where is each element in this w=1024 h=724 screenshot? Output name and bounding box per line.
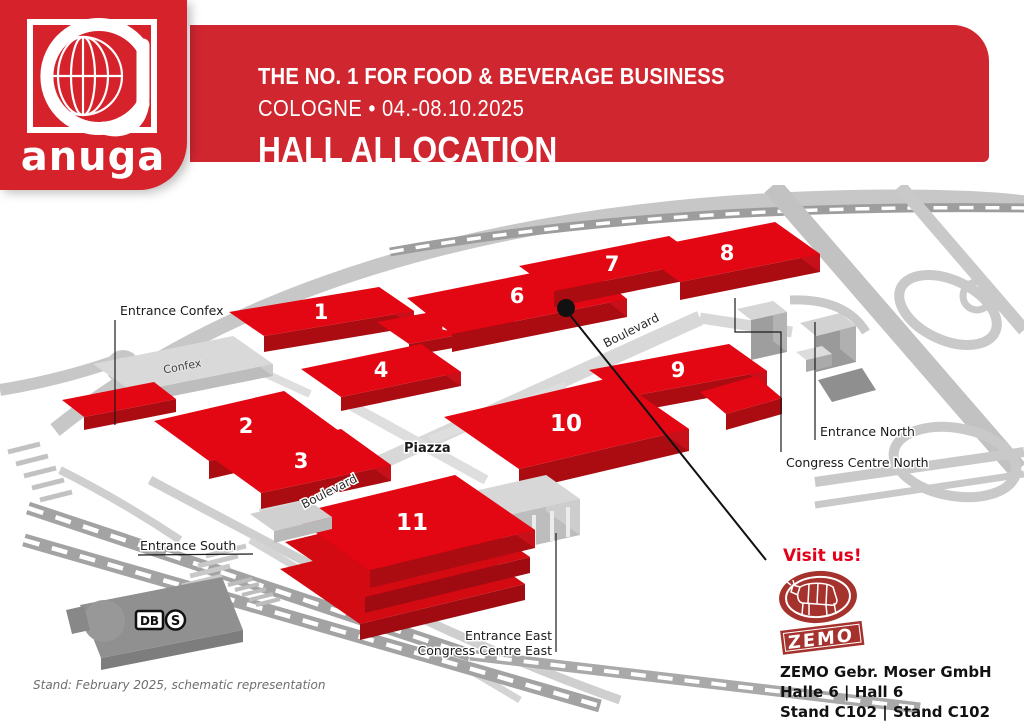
hall-3-number: 3: [294, 449, 309, 473]
sbahn-icon: S: [166, 611, 185, 630]
visit-us-label: Visit us!: [783, 546, 862, 566]
anuga-logo: anuga: [0, 0, 187, 190]
anuga-logo-icon: anuga: [0, 0, 187, 190]
hall-2-number: 2: [239, 414, 254, 438]
hall-10-number: 10: [550, 411, 582, 437]
hall-8: 8: [635, 222, 820, 300]
svg-text:S: S: [171, 614, 180, 629]
anuga-wordmark: anuga: [21, 134, 166, 180]
entrance-north-label: Entrance North: [820, 424, 915, 439]
hall-1-number: 1: [314, 300, 329, 324]
header-date-city: COLOGNE • 04.-08.10.2025: [258, 95, 524, 122]
hall-7-number: 7: [605, 252, 620, 276]
svg-text:DB: DB: [140, 614, 159, 628]
hall-11-number: 11: [396, 510, 428, 536]
exhibitor-company: ZEMO Gebr. Moser GmbH: [780, 662, 992, 682]
db-icon: DB: [136, 611, 163, 629]
entrance-confex-label: Entrance Confex: [120, 303, 224, 318]
hall-allocation-map: Confex 1 5 6 7 8: [0, 185, 1024, 724]
entrance-east-label: Entrance East: [465, 628, 552, 643]
header-banner: THE NO. 1 FOR FOOD & BEVERAGE BUSINESS C…: [190, 25, 989, 162]
page-title: HALL ALLOCATION: [258, 129, 557, 171]
zemo-banner: ZEMO: [779, 620, 866, 656]
hall-1: 1: [229, 287, 414, 352]
exhibitor-stand: Stand C102 | Stand C102: [780, 702, 992, 722]
hall-4: 4: [301, 344, 461, 411]
entrance-south-label: Entrance South: [140, 538, 236, 553]
hall-6-number: 6: [510, 284, 525, 308]
footnote: Stand: February 2025, schematic represen…: [33, 678, 325, 692]
zemo-logo: ZEMO: [778, 570, 866, 662]
exhibitor-address: ZEMO Gebr. Moser GmbH Halle 6 | Hall 6 S…: [780, 662, 992, 722]
header-tagline: THE NO. 1 FOR FOOD & BEVERAGE BUSINESS: [258, 63, 725, 90]
hall-8-number: 8: [720, 241, 735, 265]
exhibitor-hall: Halle 6 | Hall 6: [780, 682, 992, 702]
congress-centre-east-label: Congress Centre East: [417, 643, 552, 658]
hall-4-number: 4: [374, 358, 389, 382]
hall-9-number: 9: [671, 358, 686, 382]
congress-centre-north-label: Congress Centre North: [786, 455, 929, 470]
piazza-label: Piazza: [404, 441, 451, 456]
train-station: DB S: [66, 577, 243, 670]
stand-marker-dot: [557, 299, 575, 317]
